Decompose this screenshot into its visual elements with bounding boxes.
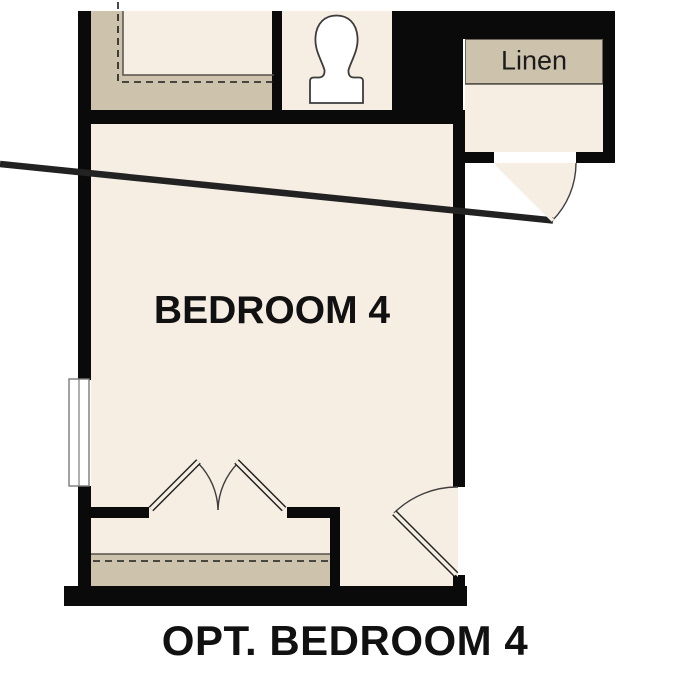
door-leaf-right-core (237, 462, 285, 510)
closet-shelf-line (123, 11, 274, 75)
plan-caption: OPT. BEDROOM 4 (162, 617, 528, 665)
fixture-overlay (0, 0, 687, 687)
toilet-symbol (310, 16, 363, 104)
linen-closet-door (0, 163, 576, 221)
door-leaf (0, 164, 553, 221)
window-symbol (69, 379, 89, 486)
door-swing-arc-left (198, 463, 218, 510)
bedroom-label: BEDROOM 4 (154, 289, 390, 333)
door-swing-arc-right (218, 463, 238, 510)
floor-plan: Linen BEDROOM 4 OPT. BEDROOM 4 (0, 0, 687, 687)
linen-label: Linen (501, 46, 567, 77)
double-closet-doors (151, 462, 284, 511)
door-leaf-left-core (151, 462, 199, 510)
closet-rod-dashed-line (118, 2, 274, 82)
bedroom-entry-door (394, 487, 458, 577)
